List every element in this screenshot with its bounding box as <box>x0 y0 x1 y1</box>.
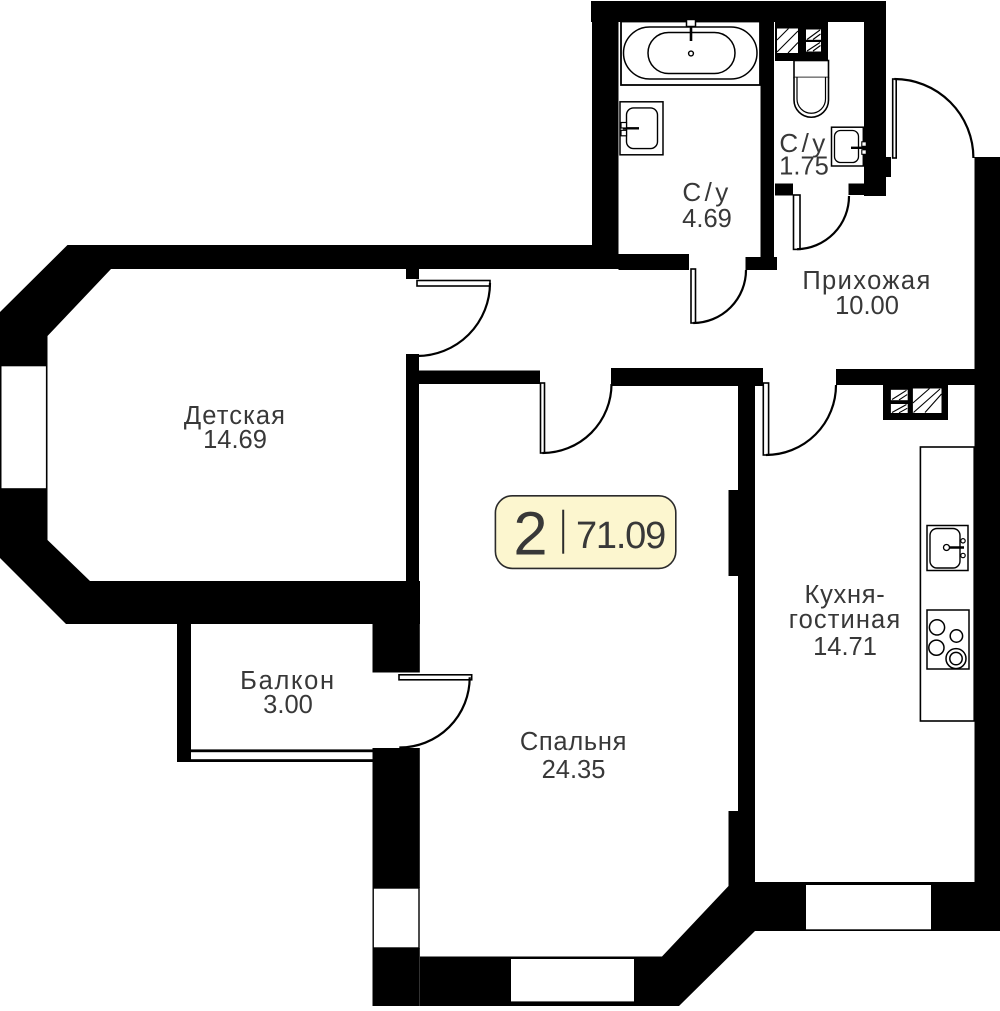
svg-text:1.75: 1.75 <box>779 153 829 181</box>
svg-text:3.00: 3.00 <box>263 691 313 719</box>
svg-text:24.35: 24.35 <box>542 756 606 784</box>
svg-text:С/у: С/у <box>682 177 731 207</box>
svg-text:Спальня: Спальня <box>520 728 627 756</box>
svg-text:10.00: 10.00 <box>835 292 899 320</box>
svg-text:2: 2 <box>513 500 547 569</box>
svg-text:4.69: 4.69 <box>682 205 732 233</box>
svg-text:14.71: 14.71 <box>813 633 877 661</box>
svg-text:14.69: 14.69 <box>203 426 267 454</box>
svg-text:Кухня-: Кухня- <box>805 581 886 609</box>
svg-text:гостиная: гостиная <box>789 606 901 634</box>
svg-text:71.09: 71.09 <box>576 515 665 557</box>
svg-text:Прихожая: Прихожая <box>802 267 931 295</box>
